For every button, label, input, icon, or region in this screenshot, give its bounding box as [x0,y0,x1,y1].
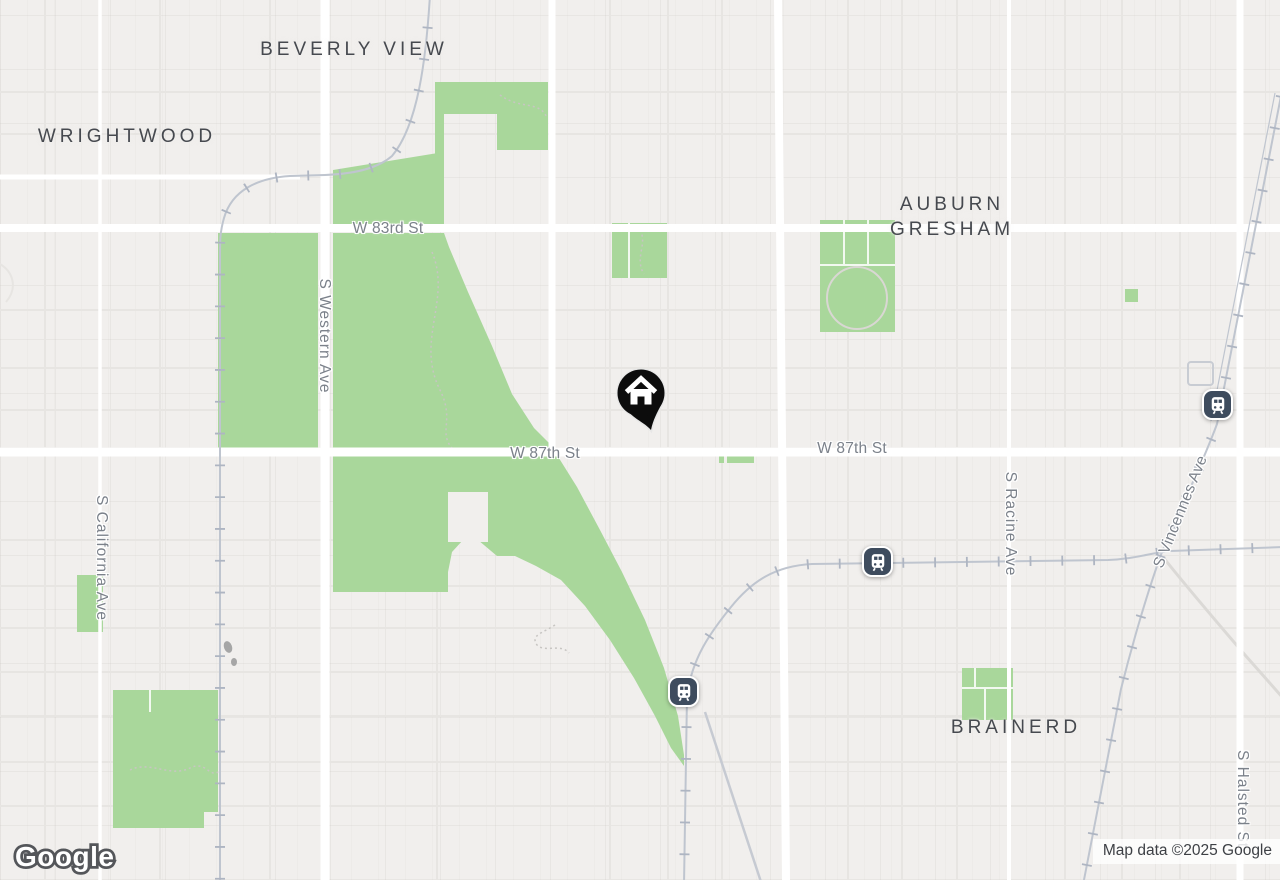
road-label-s-halsted-st: S Halsted St [1233,750,1251,848]
google-logo-text: Google [15,841,114,872]
transit-station-marker-2[interactable] [668,676,699,707]
neighborhood-label-brainerd: BRAINERD [951,717,1081,739]
map-canvas[interactable]: BEVERLY VIEW WRIGHTWOOD AUBURN GRESHAM B… [0,0,1280,880]
map-attribution: Map data ©2025 Google [1093,839,1280,864]
train-station-icon [868,552,888,572]
road-label-w-87th-st-west: W 87th St [510,445,580,463]
home-pin-icon [611,360,673,438]
neighborhood-label-wrightwood: WRIGHTWOOD [38,126,216,148]
transit-station-marker-3[interactable] [1202,389,1233,420]
train-station-icon [674,682,694,702]
neighborhood-label-beverly-view: BEVERLY VIEW [260,39,448,61]
home-marker[interactable] [611,360,673,443]
road-label-w-83rd-st: W 83rd St [353,220,424,238]
road-label-s-california-ave: S California Ave [92,495,110,621]
road-label-s-racine-ave: S Racine Ave [1001,472,1019,577]
train-station-icon [1208,395,1228,415]
road-label-w-87th-st-east: W 87th St [817,440,887,458]
transit-station-marker-1[interactable] [862,546,893,577]
road-label-s-western-ave: S Western Ave [315,279,333,394]
google-logo[interactable]: Google [11,835,151,880]
neighborhood-label-auburn-gresham: AUBURN GRESHAM [855,192,1050,242]
